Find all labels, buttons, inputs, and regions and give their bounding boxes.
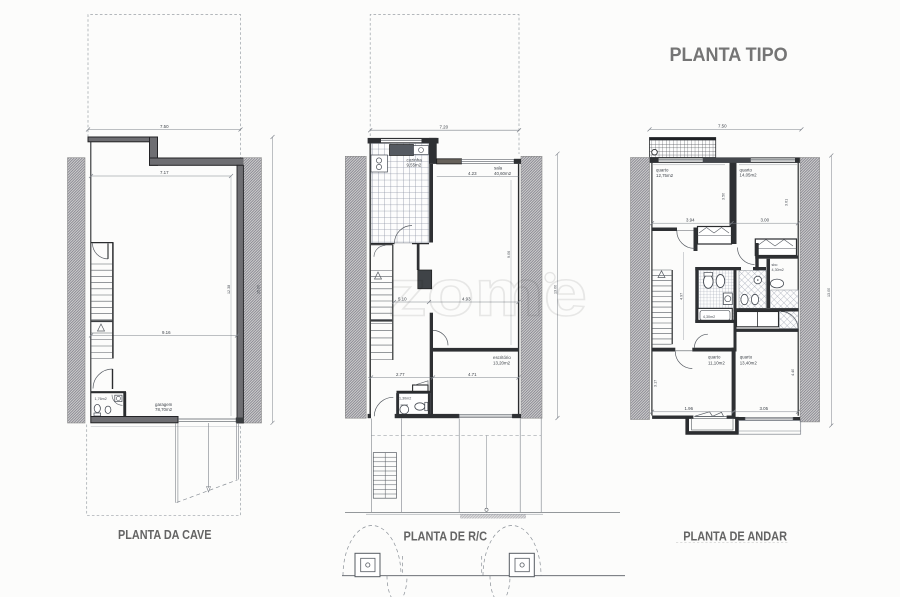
svg-text:9.16: 9.16 bbox=[162, 330, 171, 335]
svg-text:7.20: 7.20 bbox=[440, 125, 449, 130]
svg-text:3.50: 3.50 bbox=[722, 193, 726, 200]
svg-text:3.94: 3.94 bbox=[686, 218, 695, 223]
svg-text:2.77: 2.77 bbox=[396, 372, 405, 377]
svg-text:13,40m2: 13,40m2 bbox=[740, 361, 758, 366]
svg-text:4,30m2: 4,30m2 bbox=[772, 268, 784, 272]
svg-text:4.97: 4.97 bbox=[679, 293, 683, 300]
svg-text:quarto: quarto bbox=[656, 168, 669, 173]
svg-text:1,30m2: 1,30m2 bbox=[399, 397, 411, 401]
svg-text:14,05m2: 14,05m2 bbox=[740, 173, 758, 178]
svg-text:7.50: 7.50 bbox=[160, 124, 169, 129]
svg-text:sbo: sbo bbox=[772, 263, 778, 267]
svg-text:3.61: 3.61 bbox=[785, 199, 789, 206]
svg-text:PLANTA DE R/C: PLANTA DE R/C bbox=[404, 529, 488, 544]
svg-text:12,75m2: 12,75m2 bbox=[656, 173, 674, 178]
svg-text:PLANTA DE ANDAR: PLANTA DE ANDAR bbox=[683, 529, 787, 544]
svg-text:4.23: 4.23 bbox=[468, 171, 477, 176]
svg-text:12.38: 12.38 bbox=[227, 285, 231, 294]
svg-text:1,76m2: 1,76m2 bbox=[95, 397, 107, 401]
svg-text:quarto: quarto bbox=[740, 355, 753, 360]
svg-text:78,70m2: 78,70m2 bbox=[155, 407, 173, 412]
svg-text:4,30m2: 4,30m2 bbox=[703, 315, 715, 319]
svg-text:7.50: 7.50 bbox=[718, 124, 727, 129]
svg-text:escritório: escritório bbox=[493, 355, 511, 360]
svg-text:11,10m2: 11,10m2 bbox=[708, 361, 725, 366]
svg-text:7.17: 7.17 bbox=[160, 170, 169, 175]
svg-text:13,20m2: 13,20m2 bbox=[493, 361, 511, 366]
svg-text:4.40: 4.40 bbox=[791, 369, 795, 376]
svg-text:40,60m2: 40,60m2 bbox=[494, 171, 512, 176]
svg-text:PLANTA TIPO: PLANTA TIPO bbox=[670, 44, 788, 66]
svg-text:sala: sala bbox=[494, 166, 503, 171]
svg-text:4.71: 4.71 bbox=[468, 372, 477, 377]
svg-text:15.00: 15.00 bbox=[257, 285, 261, 294]
svg-text:1.96: 1.96 bbox=[685, 406, 694, 411]
svg-text:quarto: quarto bbox=[708, 355, 721, 360]
svg-text:PLANTA DA CAVE: PLANTA DA CAVE bbox=[118, 527, 212, 542]
svg-text:3.17: 3.17 bbox=[654, 380, 658, 387]
svg-text:3.00: 3.00 bbox=[761, 218, 770, 223]
svg-text:9,55m2: 9,55m2 bbox=[407, 163, 422, 168]
svg-text:3.05: 3.05 bbox=[760, 406, 769, 411]
svg-text:zome: zome bbox=[388, 256, 587, 330]
svg-text:13.00: 13.00 bbox=[827, 288, 831, 297]
